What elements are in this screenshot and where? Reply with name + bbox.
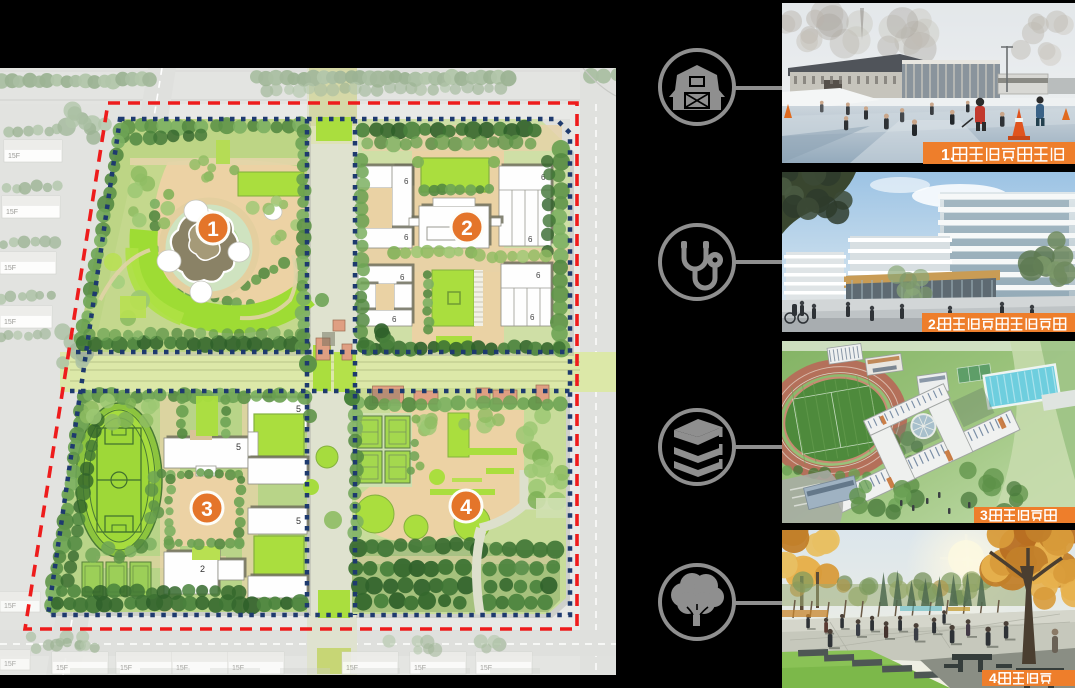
svg-text:5: 5 [296,516,301,526]
svg-text:5: 5 [296,404,301,414]
svg-text:6: 6 [404,177,409,186]
svg-text:15F: 15F [4,265,16,272]
svg-text:2.: 2. [928,316,940,332]
svg-text:15F: 15F [4,319,16,326]
svg-text:6: 6 [404,233,409,242]
svg-text:15F: 15F [4,661,16,668]
svg-text:15F: 15F [4,603,16,610]
svg-text:6: 6 [400,273,405,282]
svg-text:15F: 15F [56,665,68,672]
svg-text:15F: 15F [6,209,18,216]
svg-text:6: 6 [536,271,541,280]
svg-text:1: 1 [207,218,219,241]
svg-text:5: 5 [236,442,241,452]
svg-text:6: 6 [392,315,397,324]
svg-text:2: 2 [461,217,473,240]
svg-text:6: 6 [528,235,533,244]
svg-text:6: 6 [530,313,535,322]
svg-text:15F: 15F [8,153,20,160]
svg-text:15F: 15F [120,665,132,672]
svg-text:1.: 1. [941,147,954,164]
svg-text:2: 2 [200,564,205,574]
svg-text:3: 3 [201,498,213,521]
svg-text:4: 4 [460,496,472,519]
